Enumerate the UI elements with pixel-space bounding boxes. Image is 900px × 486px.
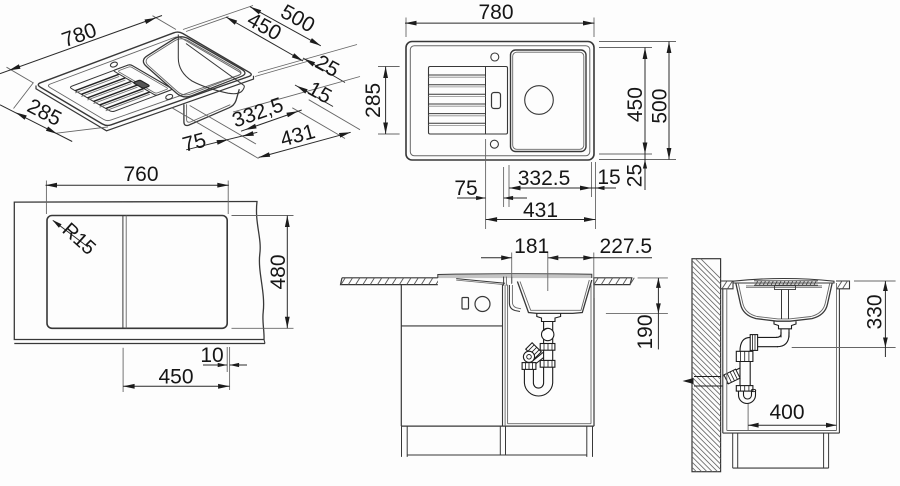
svg-text:500: 500 — [648, 89, 671, 124]
svg-text:75: 75 — [454, 177, 477, 200]
svg-text:190: 190 — [634, 314, 657, 349]
svg-text:227.5: 227.5 — [600, 235, 653, 258]
svg-text:450: 450 — [158, 366, 193, 389]
svg-text:431: 431 — [523, 199, 558, 222]
svg-text:285: 285 — [362, 83, 385, 118]
svg-text:25: 25 — [623, 164, 646, 187]
svg-text:15: 15 — [597, 166, 620, 189]
svg-text:780: 780 — [478, 1, 513, 24]
svg-text:480: 480 — [267, 254, 290, 289]
svg-text:450: 450 — [624, 87, 647, 122]
svg-text:400: 400 — [769, 401, 804, 424]
svg-text:330: 330 — [864, 294, 887, 329]
svg-text:10: 10 — [200, 344, 223, 367]
svg-text:332.5: 332.5 — [518, 167, 571, 190]
svg-text:181: 181 — [514, 235, 549, 258]
svg-text:760: 760 — [123, 163, 158, 186]
